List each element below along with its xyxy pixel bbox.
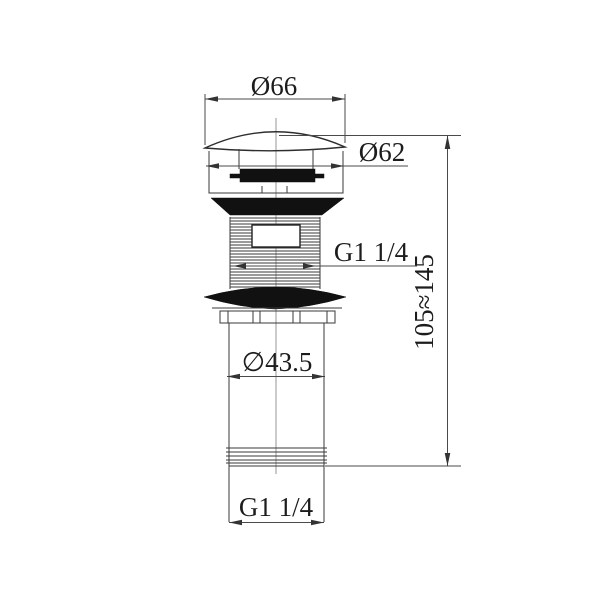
installed-height-label: 105≈145 <box>409 254 439 350</box>
corrugation-rings <box>226 448 327 463</box>
arrow-left-icon <box>206 163 219 168</box>
drain-fitting-drawing: Ø66 Ø62 G1 1/4 105≈145 ∅43.5 G1 1/4 <box>0 0 600 600</box>
arrow-up-icon <box>445 136 451 150</box>
tail-tube-diameter-label: ∅43.5 <box>242 347 313 377</box>
lock-nut <box>220 311 335 323</box>
arrow-left-icon <box>205 96 218 101</box>
drain-assembly <box>204 118 346 522</box>
arrow-right-icon <box>303 263 316 268</box>
top-thread-label: G1 1/4 <box>334 237 409 267</box>
technical-drawing-canvas: Ø66 Ø62 G1 1/4 105≈145 ∅43.5 G1 1/4 <box>0 0 600 600</box>
dimension-cap-outer-diameter: Ø66 <box>205 71 345 145</box>
cap-lip-diameter-label: Ø62 <box>359 137 406 167</box>
upper-cup-ticks <box>262 186 287 193</box>
flange <box>211 198 344 215</box>
dimension-cap-lip-diameter: Ø62 <box>206 137 408 169</box>
seal-stub-left <box>230 174 240 178</box>
dimension-tail-tube-diameter: ∅43.5 <box>227 347 325 379</box>
arrow-right-icon <box>332 96 345 101</box>
arrow-down-icon <box>445 453 451 466</box>
dome-cap <box>205 132 345 151</box>
arrow-right-icon <box>331 163 344 168</box>
rubber-seal <box>240 169 315 182</box>
overflow-slot <box>252 225 300 247</box>
bottom-thread-label: G1 1/4 <box>239 492 314 522</box>
extension-lines <box>205 94 345 145</box>
lock-nut-slots <box>228 311 327 323</box>
dimension-bottom-thread: G1 1/4 <box>229 492 324 525</box>
arrow-right-icon <box>312 374 325 379</box>
arrow-left-icon <box>233 263 246 268</box>
seal-stub-right <box>315 174 324 178</box>
rubber-washer <box>204 287 346 309</box>
cap-outer-diameter-label: Ø66 <box>251 71 298 101</box>
